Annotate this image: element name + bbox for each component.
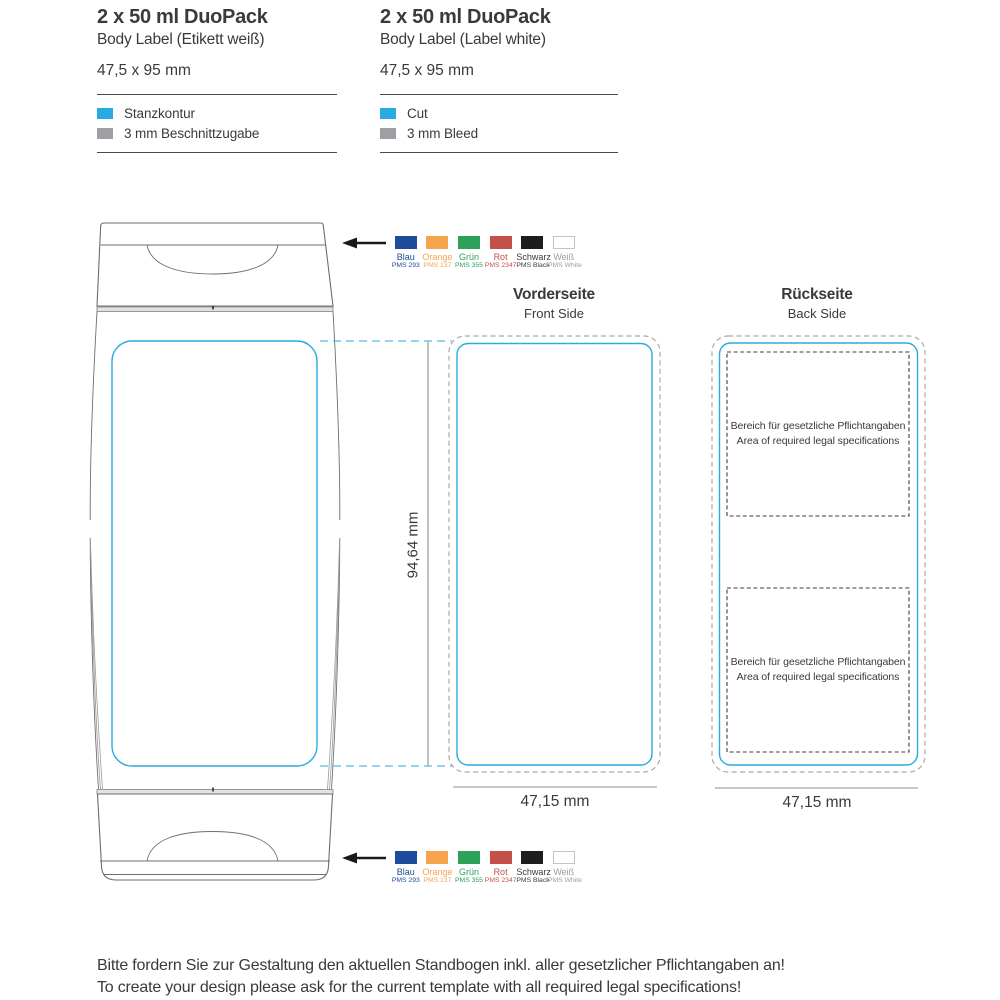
cap-pointer-arrow-bottom bbox=[342, 853, 386, 864]
swatch-name: Blau bbox=[390, 252, 422, 262]
legal-line-de: Bereich für gesetzliche Pflichtangaben bbox=[727, 655, 909, 670]
swatch-name: Orange bbox=[422, 867, 454, 877]
legend-label: 3 mm Bleed bbox=[407, 126, 478, 141]
color-chip bbox=[395, 236, 417, 249]
swatch-rot: Rot PMS 2347 bbox=[485, 236, 517, 270]
pms-swatch-row-bottom: Blau PMS 293 Orange PMS 137 Grün PMS 355… bbox=[390, 851, 580, 885]
back-width-dimension-label: 47,15 mm bbox=[716, 794, 918, 812]
cut-color-chip bbox=[380, 108, 396, 119]
bottle-body bbox=[90, 312, 340, 795]
color-chip bbox=[426, 236, 448, 249]
legend-label: 3 mm Beschnittzugabe bbox=[124, 126, 259, 141]
product-title: 2 x 50 ml DuoPack bbox=[380, 6, 618, 28]
height-dimension-label: 94,64 mm bbox=[405, 512, 422, 579]
legal-area-text-bottom: Bereich für gesetzliche Pflichtangaben A… bbox=[727, 588, 909, 752]
swatch-pms-code: PMS Black bbox=[516, 262, 548, 270]
pms-swatch-row-top: Blau PMS 293 Orange PMS 137 Grün PMS 355… bbox=[390, 236, 580, 270]
swatch-gruen: Grün PMS 355 bbox=[453, 851, 485, 885]
swatch-blau: Blau PMS 293 bbox=[390, 236, 422, 270]
swatch-gruen: Grün PMS 355 bbox=[453, 236, 485, 270]
legend-row-bleed: 3 mm Bleed bbox=[380, 123, 618, 143]
swatch-blau: Blau PMS 293 bbox=[390, 851, 422, 885]
swatch-pms-code: PMS 2347 bbox=[485, 262, 517, 270]
legend: Cut 3 mm Bleed bbox=[380, 95, 618, 152]
swatch-name: Blau bbox=[390, 867, 422, 877]
swatch-name: Rot bbox=[485, 867, 517, 877]
label-dimensions: 47,5 x 95 mm bbox=[380, 62, 618, 80]
swatch-name: Weiß bbox=[548, 867, 580, 877]
label-dimensions: 47,5 x 95 mm bbox=[97, 62, 337, 80]
legal-line-de: Bereich für gesetzliche Pflichtangaben bbox=[727, 419, 909, 434]
swatch-name: Rot bbox=[485, 252, 517, 262]
bottle-bottom-cap bbox=[98, 794, 333, 880]
product-title: 2 x 50 ml DuoPack bbox=[97, 6, 337, 28]
color-chip bbox=[553, 236, 575, 249]
swatch-schwarz: Schwarz PMS Black bbox=[516, 851, 548, 885]
swatch-pms-code: PMS 355 bbox=[453, 262, 485, 270]
color-chip bbox=[458, 851, 480, 864]
product-subtitle: Body Label (Etikett weiß) bbox=[97, 31, 337, 49]
footer-note: Bitte fordern Sie zur Gestaltung den akt… bbox=[97, 955, 785, 999]
front-bleed-outline bbox=[449, 336, 660, 772]
swatch-pms-code: PMS 137 bbox=[422, 262, 454, 270]
swatch-pms-code: PMS 293 bbox=[390, 262, 422, 270]
swatch-name: Weiß bbox=[548, 252, 580, 262]
product-subtitle: Body Label (Label white) bbox=[380, 31, 618, 49]
color-chip bbox=[458, 236, 480, 249]
swatch-schwarz: Schwarz PMS Black bbox=[516, 236, 548, 270]
swatch-pms-code: PMS White bbox=[548, 262, 580, 270]
legal-line-en: Area of required legal specifications bbox=[727, 670, 909, 685]
front-panel-outlines bbox=[449, 336, 660, 787]
color-chip bbox=[521, 851, 543, 864]
swatch-pms-code: PMS White bbox=[548, 877, 580, 885]
spec-block-english: 2 x 50 ml DuoPack Body Label (Label whit… bbox=[380, 6, 618, 153]
swatch-name: Schwarz bbox=[516, 867, 548, 877]
swatch-orange: Orange PMS 137 bbox=[422, 851, 454, 885]
legal-line-en: Area of required legal specifications bbox=[727, 434, 909, 449]
swatch-name: Grün bbox=[453, 252, 485, 262]
swatch-name: Grün bbox=[453, 867, 485, 877]
legend-row-cut: Stanzkontur bbox=[97, 103, 337, 123]
legend-label: Stanzkontur bbox=[124, 106, 195, 121]
swatch-name: Orange bbox=[422, 252, 454, 262]
bottle-top-cap bbox=[97, 223, 333, 312]
color-chip bbox=[395, 851, 417, 864]
legal-area-text-top: Bereich für gesetzliche Pflichtangaben A… bbox=[727, 352, 909, 516]
swatch-orange: Orange PMS 137 bbox=[422, 236, 454, 270]
swatch-name: Schwarz bbox=[516, 252, 548, 262]
divider bbox=[97, 152, 337, 153]
cut-color-chip bbox=[97, 108, 113, 119]
color-chip bbox=[553, 851, 575, 864]
spec-block-german: 2 x 50 ml DuoPack Body Label (Etikett we… bbox=[97, 6, 337, 153]
swatch-pms-code: PMS 2347 bbox=[485, 877, 517, 885]
print-spec-sheet: 2 x 50 ml DuoPack Body Label (Etikett we… bbox=[0, 0, 1000, 1000]
back-panel-header: Rückseite Back Side bbox=[732, 286, 902, 321]
color-chip bbox=[521, 236, 543, 249]
swatch-pms-code: PMS 355 bbox=[453, 877, 485, 885]
front-subtitle: Front Side bbox=[469, 306, 639, 321]
front-panel-header: Vorderseite Front Side bbox=[469, 286, 639, 321]
front-title: Vorderseite bbox=[469, 286, 639, 304]
cap-pointer-arrow-top bbox=[342, 238, 386, 249]
legend-label: Cut bbox=[407, 106, 428, 121]
color-chip bbox=[426, 851, 448, 864]
color-chip bbox=[490, 851, 512, 864]
legend-row-bleed: 3 mm Beschnittzugabe bbox=[97, 123, 337, 143]
swatch-weiss: Weiß PMS White bbox=[548, 236, 580, 270]
bleed-color-chip bbox=[380, 128, 396, 139]
legend-row-cut: Cut bbox=[380, 103, 618, 123]
footer-line-de: Bitte fordern Sie zur Gestaltung den akt… bbox=[97, 955, 785, 977]
back-subtitle: Back Side bbox=[732, 306, 902, 321]
swatch-weiss: Weiß PMS White bbox=[548, 851, 580, 885]
front-width-dimension-label: 47,15 mm bbox=[455, 793, 655, 811]
back-title: Rückseite bbox=[732, 286, 902, 304]
swatch-rot: Rot PMS 2347 bbox=[485, 851, 517, 885]
legend: Stanzkontur 3 mm Beschnittzugabe bbox=[97, 95, 337, 152]
footer-line-en: To create your design please ask for the… bbox=[97, 977, 785, 999]
swatch-pms-code: PMS Black bbox=[516, 877, 548, 885]
bleed-color-chip bbox=[97, 128, 113, 139]
divider bbox=[380, 152, 618, 153]
swatch-pms-code: PMS 137 bbox=[422, 877, 454, 885]
label-cut-outline bbox=[112, 341, 317, 766]
color-chip bbox=[490, 236, 512, 249]
swatch-pms-code: PMS 293 bbox=[390, 877, 422, 885]
